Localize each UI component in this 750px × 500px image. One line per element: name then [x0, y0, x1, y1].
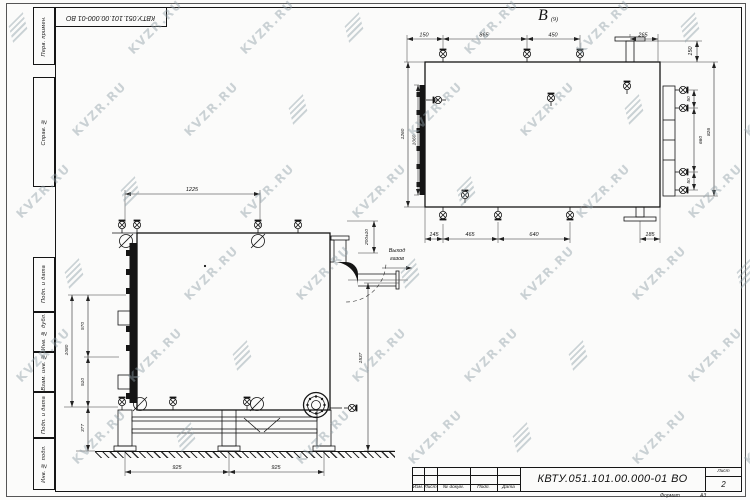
margin-cell-label: Подп. и дата: [41, 396, 47, 434]
sheet-label: Лист: [705, 469, 742, 474]
margin-cell-inv-podl: Инв. № подл.: [33, 438, 55, 490]
title-block-row-line: [705, 476, 742, 477]
margin-cell-inv-dubl: Инв. № дубл.: [33, 312, 55, 352]
tb-col-data: Дата: [497, 485, 520, 490]
margin-cell-podp-data-2: Подп. и дата: [33, 392, 55, 438]
top-rotated-stamp: КВТУ.051.101.00.000-01 ВО: [55, 7, 167, 27]
doc-number: КВТУ.051.101.00.000-01 ВО: [522, 473, 703, 485]
tb-col-dokum: № докум.: [437, 485, 470, 490]
tb-col-izm: Изм.: [412, 485, 424, 490]
tb-col-list: Лист: [424, 485, 437, 490]
format-value: А3: [700, 493, 706, 499]
sheet-number: 2: [705, 480, 742, 489]
margin-cell-perv-primen: Перв. примен.: [33, 7, 55, 65]
drawing-frame: [55, 7, 742, 492]
margin-cell-label: Инв. № подл.: [41, 445, 47, 483]
title-block-row-line: [412, 475, 520, 476]
margin-cell-vzam-inv: Взам. инв. №: [33, 352, 55, 392]
title-block-divider: [520, 467, 521, 492]
margin-cell-label: Справ. №: [41, 118, 47, 145]
top-stamp-doc-number: КВТУ.051.101.00.000-01 ВО: [66, 14, 155, 21]
margin-cell-label: Подп. и дата: [41, 265, 47, 303]
margin-cell-sprav-no: Справ. №: [33, 77, 55, 187]
margin-cell-label: Перв. примен.: [41, 16, 47, 56]
margin-cell-label: Инв. № дубл.: [41, 313, 47, 350]
margin-cell-label: Взам. инв. №: [41, 353, 47, 391]
tb-col-podp: Подп.: [470, 485, 497, 490]
format-label: Формат: [660, 493, 680, 499]
margin-cell-podp-data-1: Подп. и дата: [33, 257, 55, 312]
